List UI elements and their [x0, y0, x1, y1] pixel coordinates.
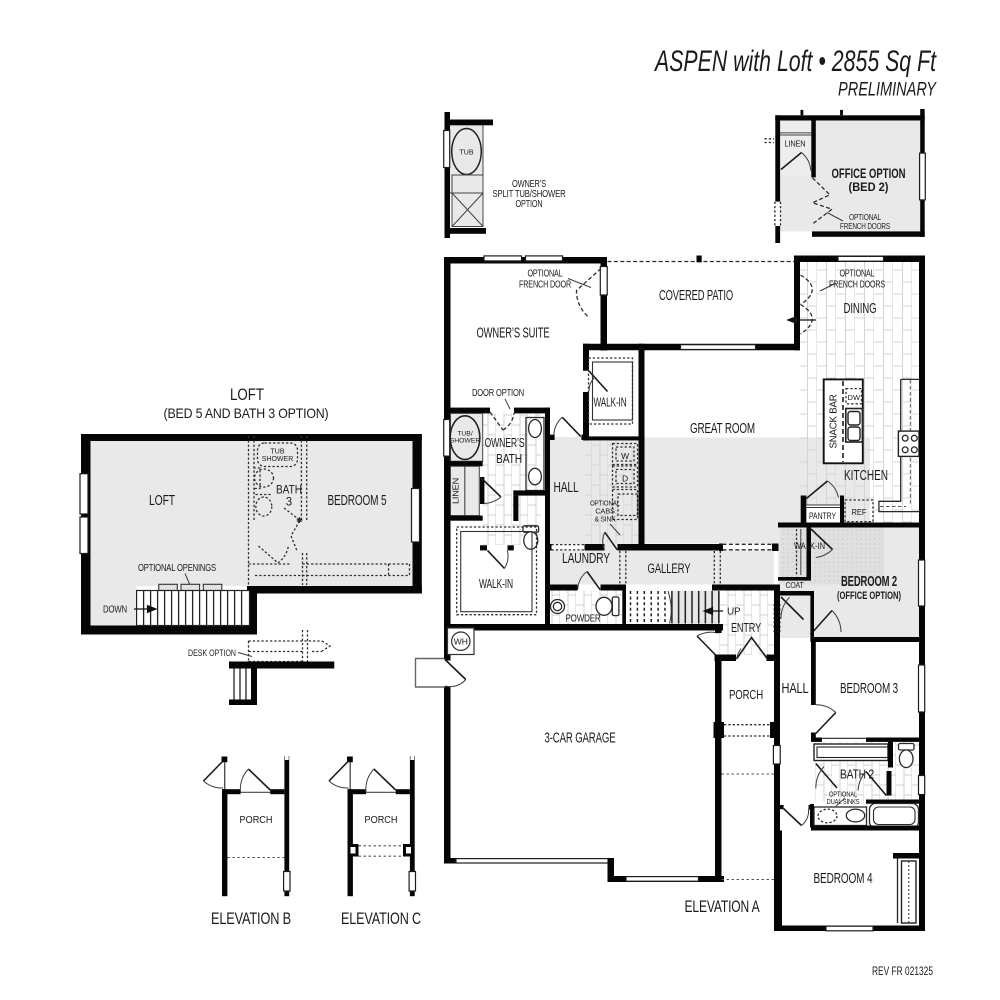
svg-text:WH: WH — [454, 637, 468, 647]
svg-text:DESK OPTION: DESK OPTION — [188, 648, 236, 659]
svg-text:SHOWER: SHOWER — [262, 456, 294, 463]
svg-text:ELEVATION C: ELEVATION C — [341, 909, 421, 928]
svg-text:BEDROOM 5: BEDROOM 5 — [328, 492, 387, 509]
svg-text:PORCH: PORCH — [365, 814, 398, 826]
svg-text:DUAL SINKS: DUAL SINKS — [827, 797, 860, 806]
svg-text:GREAT ROOM: GREAT ROOM — [690, 420, 755, 437]
svg-text:DW: DW — [848, 393, 861, 402]
svg-text:WALK-IN: WALK-IN — [794, 541, 825, 552]
svg-text:(OFFICE OPTION): (OFFICE OPTION) — [837, 590, 901, 602]
svg-text:3: 3 — [286, 497, 292, 509]
svg-text:DOWN: DOWN — [103, 605, 127, 616]
svg-text:LAUNDRY: LAUNDRY — [562, 550, 610, 567]
svg-text:OPTION: OPTION — [516, 199, 543, 210]
svg-text:BATH: BATH — [276, 485, 302, 497]
svg-text:ENTRY: ENTRY — [731, 620, 761, 635]
svg-text:BEDROOM 4: BEDROOM 4 — [814, 871, 873, 887]
svg-text:OPTIONAL: OPTIONAL — [528, 269, 563, 280]
svg-text:(BED 5 AND BATH 3 OPTION): (BED 5 AND BATH 3 OPTION) — [164, 405, 329, 421]
svg-text:GALLERY: GALLERY — [648, 561, 691, 576]
svg-text:D: D — [622, 474, 628, 484]
svg-text:REF: REF — [852, 508, 867, 517]
svg-text:KITCHEN: KITCHEN — [844, 468, 888, 484]
svg-text:LINEN: LINEN — [451, 478, 461, 504]
svg-text:PORCH: PORCH — [240, 814, 273, 826]
svg-text:& SINK: & SINK — [595, 515, 616, 524]
svg-text:TUB/: TUB/ — [457, 431, 473, 438]
svg-text:SHOWER: SHOWER — [450, 438, 481, 445]
svg-text:PRELIMINARY: PRELIMINARY — [838, 80, 937, 101]
svg-text:W: W — [621, 451, 629, 461]
svg-text:UP: UP — [727, 607, 741, 618]
svg-text:FRENCH DOORS: FRENCH DOORS — [829, 280, 885, 291]
svg-text:LOFT: LOFT — [230, 385, 264, 404]
svg-text:OWNER’S: OWNER’S — [485, 435, 525, 450]
svg-text:TUB: TUB — [460, 150, 474, 157]
svg-text:OPTIONAL OPENINGS: OPTIONAL OPENINGS — [138, 563, 216, 574]
svg-text:PORCH: PORCH — [729, 687, 763, 702]
svg-text:OWNER’S SUITE: OWNER’S SUITE — [477, 325, 550, 342]
svg-text:(BED 2): (BED 2) — [849, 182, 889, 194]
svg-text:OFFICE OPTION: OFFICE OPTION — [832, 165, 906, 181]
svg-text:DINING: DINING — [844, 300, 877, 317]
svg-text:BEDROOM 3: BEDROOM 3 — [840, 681, 898, 697]
svg-text:HALL: HALL — [782, 680, 809, 697]
svg-text:BATH: BATH — [496, 451, 522, 466]
svg-text:ELEVATION B: ELEVATION B — [211, 909, 291, 928]
svg-text:REV FR 021325: REV FR 021325 — [872, 966, 933, 978]
svg-text:PANTRY: PANTRY — [809, 511, 836, 522]
svg-text:ASPEN with Loft • 2855 Sq Ft: ASPEN with Loft • 2855 Sq Ft — [654, 45, 938, 78]
svg-text:OPTIONAL: OPTIONAL — [840, 269, 875, 280]
svg-text:WALK-IN: WALK-IN — [479, 576, 513, 591]
svg-text:FRENCH DOORS: FRENCH DOORS — [840, 221, 890, 231]
svg-text:COVERED PATIO: COVERED PATIO — [659, 287, 733, 304]
svg-text:POWDER: POWDER — [566, 614, 601, 625]
svg-text:BEDROOM 2: BEDROOM 2 — [841, 574, 897, 590]
svg-text:3-CAR GARAGE: 3-CAR GARAGE — [545, 730, 616, 747]
svg-text:ELEVATION A: ELEVATION A — [685, 897, 761, 916]
svg-text:COAT: COAT — [786, 580, 804, 590]
svg-text:DOOR OPTION: DOOR OPTION — [472, 388, 524, 399]
svg-text:FRENCH DOOR: FRENCH DOOR — [519, 280, 571, 291]
svg-text:SNACK BAR: SNACK BAR — [829, 395, 840, 449]
svg-text:HALL: HALL — [554, 479, 579, 496]
svg-text:WALK-IN: WALK-IN — [594, 395, 627, 410]
svg-text:TUB: TUB — [271, 449, 285, 456]
svg-text:LINEN: LINEN — [785, 139, 806, 149]
svg-text:LOFT: LOFT — [149, 492, 175, 509]
